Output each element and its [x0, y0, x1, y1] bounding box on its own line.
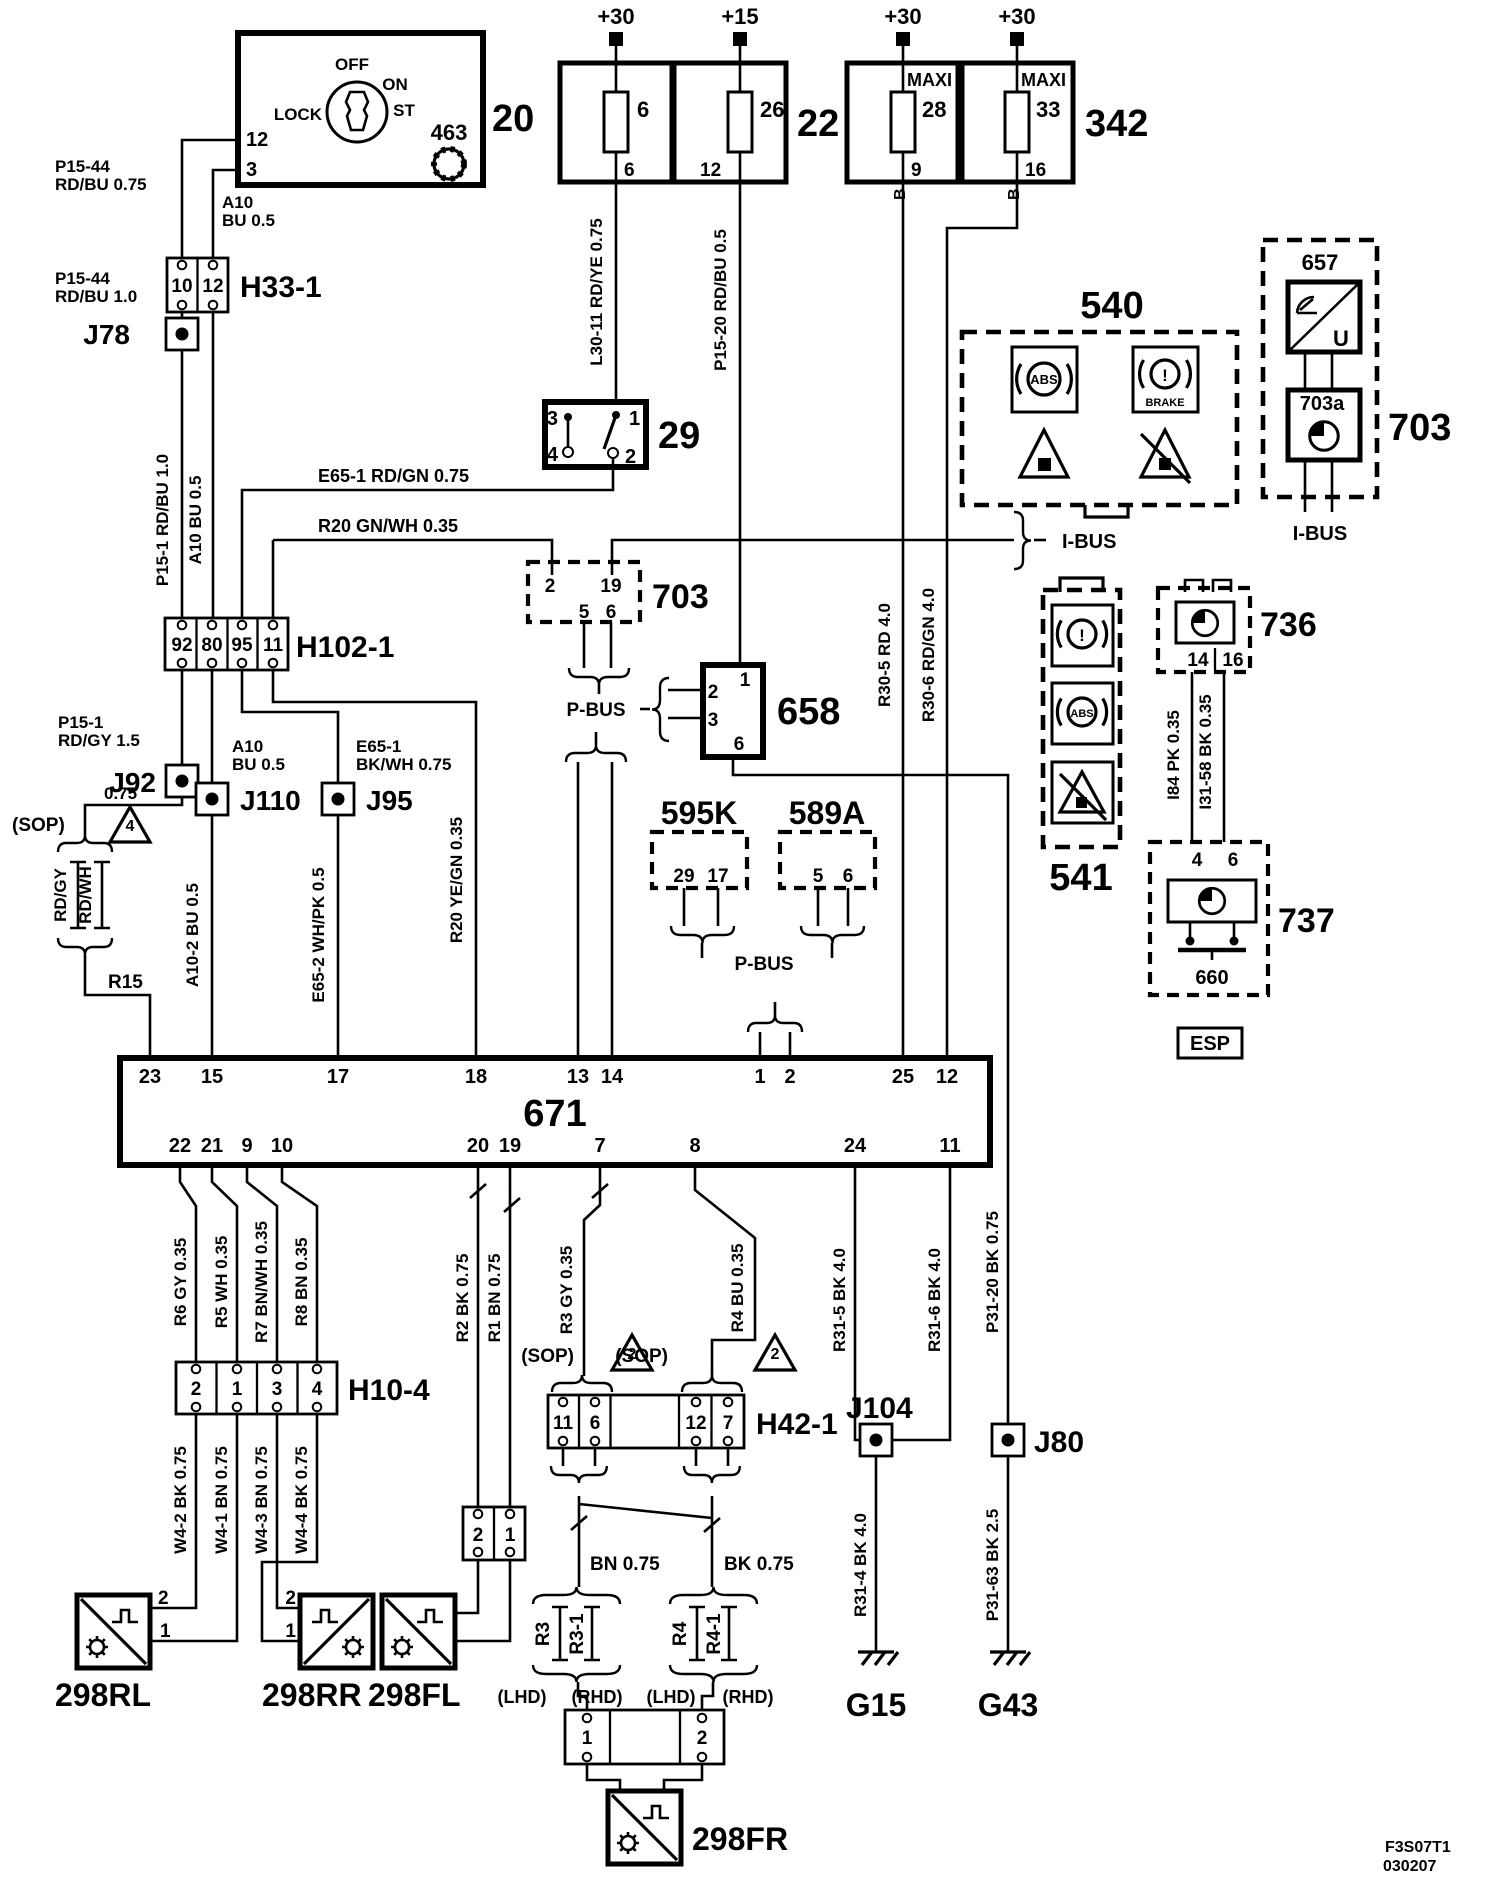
connector-h42-1: 11 6 12 7 H42-1 [548, 1395, 838, 1483]
on-label: ON [382, 75, 408, 94]
pin: 80 [201, 635, 222, 656]
pin: 4 [547, 444, 559, 466]
pin: 11 [263, 635, 284, 656]
connector-h102-1: 92 80 95 11 H102-1 [165, 618, 394, 670]
fuse-pin: 16 [1025, 160, 1046, 181]
pin: 6 [1228, 850, 1239, 871]
wire-label: E65-1 [356, 737, 401, 756]
connector-id: H10-4 [348, 1374, 430, 1407]
connector-703: 2 19 5 6 703 P-BUS [528, 562, 709, 762]
sensor-label: 298RR [262, 1677, 362, 1713]
fuse-pin: 6 [624, 160, 635, 181]
connector-id: 595K [661, 795, 738, 831]
wire-label: RD/WH [76, 866, 95, 924]
esp-off-triangle-icon [1076, 797, 1087, 808]
pin: 2 [625, 446, 636, 468]
wire-label: W4-1 BN 0.75 [212, 1446, 231, 1554]
brace [1014, 512, 1031, 569]
connector-h10-4: 2 1 3 4 H10-4 [176, 1362, 430, 1414]
wire-label: L30-11 RD/YE 0.75 [587, 218, 606, 365]
pin: 4 [1192, 850, 1203, 871]
pin: 5 [813, 866, 824, 887]
wire-label: I31-58 BK 0.35 [1196, 694, 1215, 809]
connector-595k: 595K 29 17 [652, 795, 747, 943]
terminal-30-label: +30 [597, 4, 634, 29]
wire-label: A10 [232, 737, 263, 756]
lhd-label: (LHD) [498, 1687, 547, 1707]
wheel-sensor-298rr [300, 1595, 373, 1668]
wire-label: A10 BU 0.5 [186, 476, 205, 565]
wire-label: R6 GY 0.35 [171, 1238, 190, 1327]
wire-label: P15-20 RD/BU 0.5 [711, 229, 730, 371]
unit-id: 737 [1278, 902, 1335, 940]
gauge-icon [1297, 297, 1317, 313]
unit-20-id: 20 [492, 98, 534, 140]
connector-id: H33-1 [240, 271, 322, 304]
ground-symbol-g15 [858, 1652, 898, 1665]
pin: 14 [1187, 650, 1209, 671]
fuse-element [891, 92, 915, 152]
pump-icon [1310, 422, 1339, 451]
wire-label: RD/GY 1.5 [58, 731, 140, 750]
wire-label: R8 BN 0.35 [292, 1238, 311, 1327]
pin: 1 [754, 1066, 765, 1088]
wire-label: BK/WH 0.75 [356, 755, 451, 774]
fuse-number: 28 [922, 97, 946, 122]
pbus-label: P-BUS [566, 700, 625, 721]
sym-463-label: 463 [431, 120, 468, 145]
pin: 11 [939, 1135, 960, 1157]
brake-text: BRAKE [1145, 397, 1184, 409]
junction-label: J80 [1034, 1426, 1084, 1459]
pin: 2 [708, 682, 719, 703]
brace [748, 1015, 802, 1032]
wire-label: P15-1 RD/BU 1.0 [153, 454, 172, 586]
wire-label-r4: R4 [670, 1621, 691, 1646]
pin: 7 [594, 1135, 605, 1157]
brace [801, 926, 864, 943]
maxi-label: MAXI [907, 70, 952, 90]
ground-symbol-g43 [990, 1652, 1030, 1665]
wire-label: I84 PK 0.35 [1164, 710, 1183, 800]
wire-label: R1 BN 0.75 [485, 1254, 504, 1343]
pin: 6 [734, 734, 745, 755]
pin: 5 [579, 602, 590, 623]
fuse-element [1005, 92, 1029, 152]
pin: 29 [673, 866, 694, 887]
brace [533, 1587, 620, 1604]
connector-id: 703 [652, 578, 709, 616]
wire-label: R2 BK 0.75 [453, 1254, 472, 1343]
fuse-element [604, 92, 628, 152]
wire-label: R20 GN/WH 0.35 [318, 516, 458, 536]
pin: 17 [707, 866, 728, 887]
connector-2-1: 2 1 [463, 1507, 525, 1560]
wire-label-r3: R3 [533, 1622, 554, 1646]
pin: 15 [201, 1066, 223, 1088]
wire-label: RD/GY [51, 867, 70, 922]
terminal-square [609, 32, 623, 46]
drawing-number: F3S07T1 [1385, 1839, 1451, 1856]
terminal-15-label: +15 [721, 4, 758, 29]
wire-label: R15 [108, 972, 143, 993]
brace [552, 1375, 612, 1392]
pin: 12 [202, 276, 223, 297]
pin: 19 [499, 1135, 521, 1157]
unit-736: 14 16 736 [1158, 580, 1317, 672]
lhd-label: (LHD) [647, 1687, 696, 1707]
wire-label: E65-2 WH/PK 0.5 [309, 867, 328, 1002]
junction-label: J78 [83, 319, 130, 350]
wire-label: P15-1 [58, 713, 103, 732]
wire-label: BU 0.5 [222, 211, 275, 230]
connector-id: 589A [789, 795, 866, 831]
unit-737: 4 6 660 737 ESP [1150, 842, 1335, 1058]
fuse-number: 33 [1036, 97, 1060, 122]
ibus-label: I-BUS [1062, 531, 1116, 553]
wire-label: BN 0.75 [590, 1554, 660, 1575]
brace [569, 668, 629, 685]
ecu-671: 671 23 15 17 18 13 14 1 2 25 12 22 21 9 … [120, 1058, 990, 1165]
wire-label: BK 0.75 [724, 1554, 794, 1575]
sensor-label: 298FL [368, 1677, 460, 1713]
sop-options-mid: (SOP) 2 (SOP) 2 [521, 1335, 795, 1392]
unit-id: 736 [1260, 606, 1317, 644]
key-icon [346, 92, 368, 130]
variant-group-r4: R4 R4-1 [670, 1587, 757, 1682]
rhd-label: (RHD) [723, 1687, 774, 1707]
wire-label: A10-2 BU 0.5 [183, 883, 202, 987]
junction-j92 [166, 765, 198, 797]
abs-text: ABS [1030, 372, 1058, 387]
wire-label: R5 WH 0.35 [212, 1236, 231, 1329]
pin: 1 [285, 1621, 296, 1642]
brake-excl: ! [1079, 626, 1085, 645]
junction-label: J104 [846, 1392, 913, 1425]
wire-label: W4-4 BK 0.75 [292, 1446, 311, 1554]
esp-off-triangle-icon [1060, 772, 1106, 820]
pin: 10 [271, 1135, 293, 1157]
pin: 6 [606, 602, 617, 623]
lock-label: LOCK [274, 105, 323, 124]
sub-unit-657: 657 [1302, 250, 1339, 275]
variant-group-r3: 298RL R3 R3-1 [533, 1587, 620, 1682]
terminal-square [733, 32, 747, 46]
wire-label: R31-6 BK 4.0 [925, 1248, 944, 1352]
pin: 2 [784, 1066, 795, 1088]
wire-label: A10 [222, 193, 253, 212]
rhd-label: (RHD) [572, 1687, 623, 1707]
power-terminals: +30 +15 +30 +30 [597, 4, 1035, 46]
maxi-label: MAXI [1021, 70, 1066, 90]
pin: 12 [936, 1066, 958, 1088]
lhd-rhd-labels: (LHD) (RHD) (LHD) (RHD) [498, 1687, 774, 1707]
fuse-pin: 12 [700, 160, 721, 181]
pin: 95 [231, 635, 253, 656]
pin: 2 [473, 1525, 484, 1546]
esp-triangle-icon [1038, 458, 1051, 471]
sop-option-left: (SOP) 4 RD/GY RD/WH [12, 807, 150, 955]
unit-id: 540 [1080, 285, 1143, 327]
pin: 19 [600, 576, 621, 597]
pin: 24 [844, 1135, 867, 1157]
pin: 2 [545, 576, 556, 597]
pin: 10 [171, 276, 192, 297]
unit-id: 29 [658, 415, 700, 457]
pin-3: 3 [246, 159, 257, 181]
esp-off-triangle-icon [1159, 458, 1171, 470]
pin: 25 [892, 1066, 914, 1088]
sensor-label: 298RL [55, 1677, 151, 1713]
pin: 1 [505, 1525, 516, 1546]
pin: 92 [171, 635, 192, 656]
pin: 14 [601, 1066, 624, 1088]
pin: 18 [465, 1066, 487, 1088]
voltage-u: U [1333, 326, 1349, 351]
wire-label-r3-1: R3-1 [567, 1613, 588, 1655]
pin: 3 [547, 408, 558, 430]
pin: 1 [740, 670, 751, 691]
pin: 3 [272, 1379, 283, 1400]
connector-1-2: 1 2 [565, 1710, 724, 1764]
unit-703-top: 657 U 703a 703 I-BUS [1263, 240, 1451, 545]
b-terminal-label: B [892, 188, 909, 200]
pin: 12 [685, 1413, 706, 1434]
connector-h33-1: 10 12 H33-1 [167, 258, 322, 312]
ground-660: 660 [1195, 967, 1228, 989]
pin: 11 [553, 1413, 574, 1434]
unit-id: 541 [1049, 857, 1112, 899]
fuse-number: 26 [760, 97, 784, 122]
variant-number: 2 [771, 1346, 780, 1363]
wire-label: R31-4 BK 4.0 [851, 1513, 870, 1617]
terminal-30-label: +30 [998, 4, 1035, 29]
brace [684, 1466, 740, 1483]
switch-29: 3 4 1 2 29 [545, 402, 700, 468]
wire-label: RD/BU 1.0 [55, 287, 137, 306]
sop-label: (SOP) [12, 815, 65, 836]
pin: 23 [139, 1066, 161, 1088]
unit-658: 1 2 3 6 658 [640, 665, 840, 757]
sub-unit-703a: 703a [1300, 393, 1345, 415]
brace [551, 1466, 607, 1483]
wire-label: R30-5 RD 4.0 [875, 603, 894, 707]
fuse-block-342: MAXI MAXI 28 33 9 16 342 B B [847, 63, 1148, 200]
brace [533, 1665, 620, 1682]
wire-label: R3 GY 0.35 [557, 1246, 576, 1335]
wire-label: R31-5 BK 4.0 [830, 1248, 849, 1352]
pin: 17 [327, 1066, 349, 1088]
wire-label: R30-6 RD/GN 4.0 [919, 588, 938, 722]
junction-label: J92 [109, 767, 156, 798]
pump-icon [1199, 888, 1225, 914]
pin: 2 [191, 1379, 202, 1400]
fuse-block-id: 22 [797, 103, 839, 145]
wire-label: RD/BU 0.75 [55, 175, 147, 194]
junction-j95 [322, 783, 354, 815]
fuse-pin: 9 [911, 160, 922, 181]
wire-label-r4-1: R4-1 [704, 1613, 725, 1655]
connector-id: H102-1 [296, 631, 394, 664]
wire-label: R20 YE/GN 0.35 [447, 817, 466, 943]
pin: 9 [241, 1135, 252, 1157]
wire-label: P31-20 BK 0.75 [983, 1211, 1002, 1333]
brace [58, 835, 112, 852]
terminal-square [1010, 32, 1024, 46]
fuse-element [728, 92, 752, 152]
unit-id: 703 [1388, 407, 1451, 449]
b-terminal-label: B [1006, 188, 1023, 200]
wire-label: P31-63 BK 2.5 [983, 1509, 1002, 1621]
ground-label: G15 [846, 1687, 906, 1723]
ibus-label: I-BUS [1293, 523, 1347, 545]
ground-label: G43 [978, 1687, 1038, 1723]
wheel-sensor-298fr [608, 1791, 681, 1864]
brace [652, 678, 669, 741]
esp-label: ESP [1190, 1033, 1230, 1055]
pin: 4 [312, 1379, 323, 1400]
pin: 20 [467, 1135, 489, 1157]
terminal-square [896, 32, 910, 46]
pin: 1 [582, 1728, 593, 1749]
brace [670, 1587, 757, 1604]
sensor-label: 298FR [692, 1821, 788, 1857]
connector-id: H42-1 [756, 1408, 838, 1441]
pbus-label: P-BUS [734, 954, 793, 975]
pin: 13 [567, 1066, 589, 1088]
wire-label: E65-1 RD/GN 0.75 [318, 466, 469, 486]
variant-number: 4 [126, 818, 135, 835]
drawing-date: 030207 [1383, 1858, 1436, 1875]
pin: 6 [843, 866, 854, 887]
brace [58, 938, 112, 955]
pin: 2 [158, 1588, 169, 1609]
fuse-block-id: 342 [1085, 103, 1148, 145]
wire-label: P15-44 [55, 269, 110, 288]
sop-label: (SOP) [615, 1346, 668, 1367]
pin: 6 [590, 1413, 601, 1434]
pin: 16 [1222, 650, 1243, 671]
pump-icon [1192, 610, 1218, 636]
wire-label: P15-44 [55, 157, 110, 176]
brace [671, 926, 734, 943]
ignition-switch-20: LOCK OFF ON ST 463 12 3 20 [238, 33, 534, 185]
wire-label: R4 BU 0.35 [728, 1244, 747, 1333]
abs-esp-wiring-diagram: +30 +15 +30 +30 6 26 6 12 22 MAXI MAXI 2… [0, 0, 1504, 1884]
junction-j78 [166, 318, 198, 350]
pin: 22 [169, 1135, 191, 1157]
st-label: ST [393, 101, 415, 120]
terminal-30-label: +30 [884, 4, 921, 29]
pin: 7 [723, 1413, 734, 1434]
pin: 2 [285, 1588, 296, 1609]
wheel-sensor-298fl [382, 1595, 455, 1668]
junction-j110 [196, 783, 228, 815]
brake-excl: ! [1162, 366, 1168, 385]
wire-label: W4-3 BN 0.75 [252, 1446, 271, 1554]
connector-589a: 589A 5 6 [780, 795, 875, 943]
wire-label: BU 0.5 [232, 755, 285, 774]
wire-label: W4-2 BK 0.75 [171, 1446, 190, 1554]
junction-label: J110 [240, 785, 301, 816]
abs-text: ABS [1070, 708, 1093, 720]
fuse-number: 6 [637, 97, 649, 122]
wiring-diagram-page: +30 +15 +30 +30 6 26 6 12 22 MAXI MAXI 2… [0, 0, 1504, 1884]
unit-id: 658 [777, 691, 840, 733]
fuse-block-22: 6 26 6 12 22 [560, 63, 839, 182]
pin-12: 12 [246, 129, 268, 151]
pin: 2 [697, 1728, 708, 1749]
junction-j104 [860, 1424, 892, 1456]
warning-cluster-541: ! ABS 541 [1043, 578, 1120, 899]
instrument-540: 540 ABS ! BRAKE [962, 285, 1237, 517]
pin: 1 [629, 408, 640, 430]
unit-id: 671 [523, 1093, 586, 1135]
junction-label: J95 [366, 785, 413, 816]
brace [566, 745, 626, 762]
brace [670, 1665, 757, 1682]
pin: 8 [689, 1135, 700, 1157]
wheel-sensor-298rl [77, 1595, 150, 1668]
pin: 1 [232, 1379, 243, 1400]
pin: 1 [160, 1621, 171, 1642]
sop-label: (SOP) [521, 1346, 574, 1367]
wire-label: R7 BN/WH 0.35 [252, 1221, 271, 1343]
esp-off-triangle-icon [1141, 430, 1190, 483]
junction-j80 [992, 1424, 1024, 1456]
brace [682, 1375, 742, 1392]
pin: 3 [708, 710, 719, 731]
off-label: OFF [335, 55, 369, 74]
pin: 21 [201, 1135, 223, 1157]
